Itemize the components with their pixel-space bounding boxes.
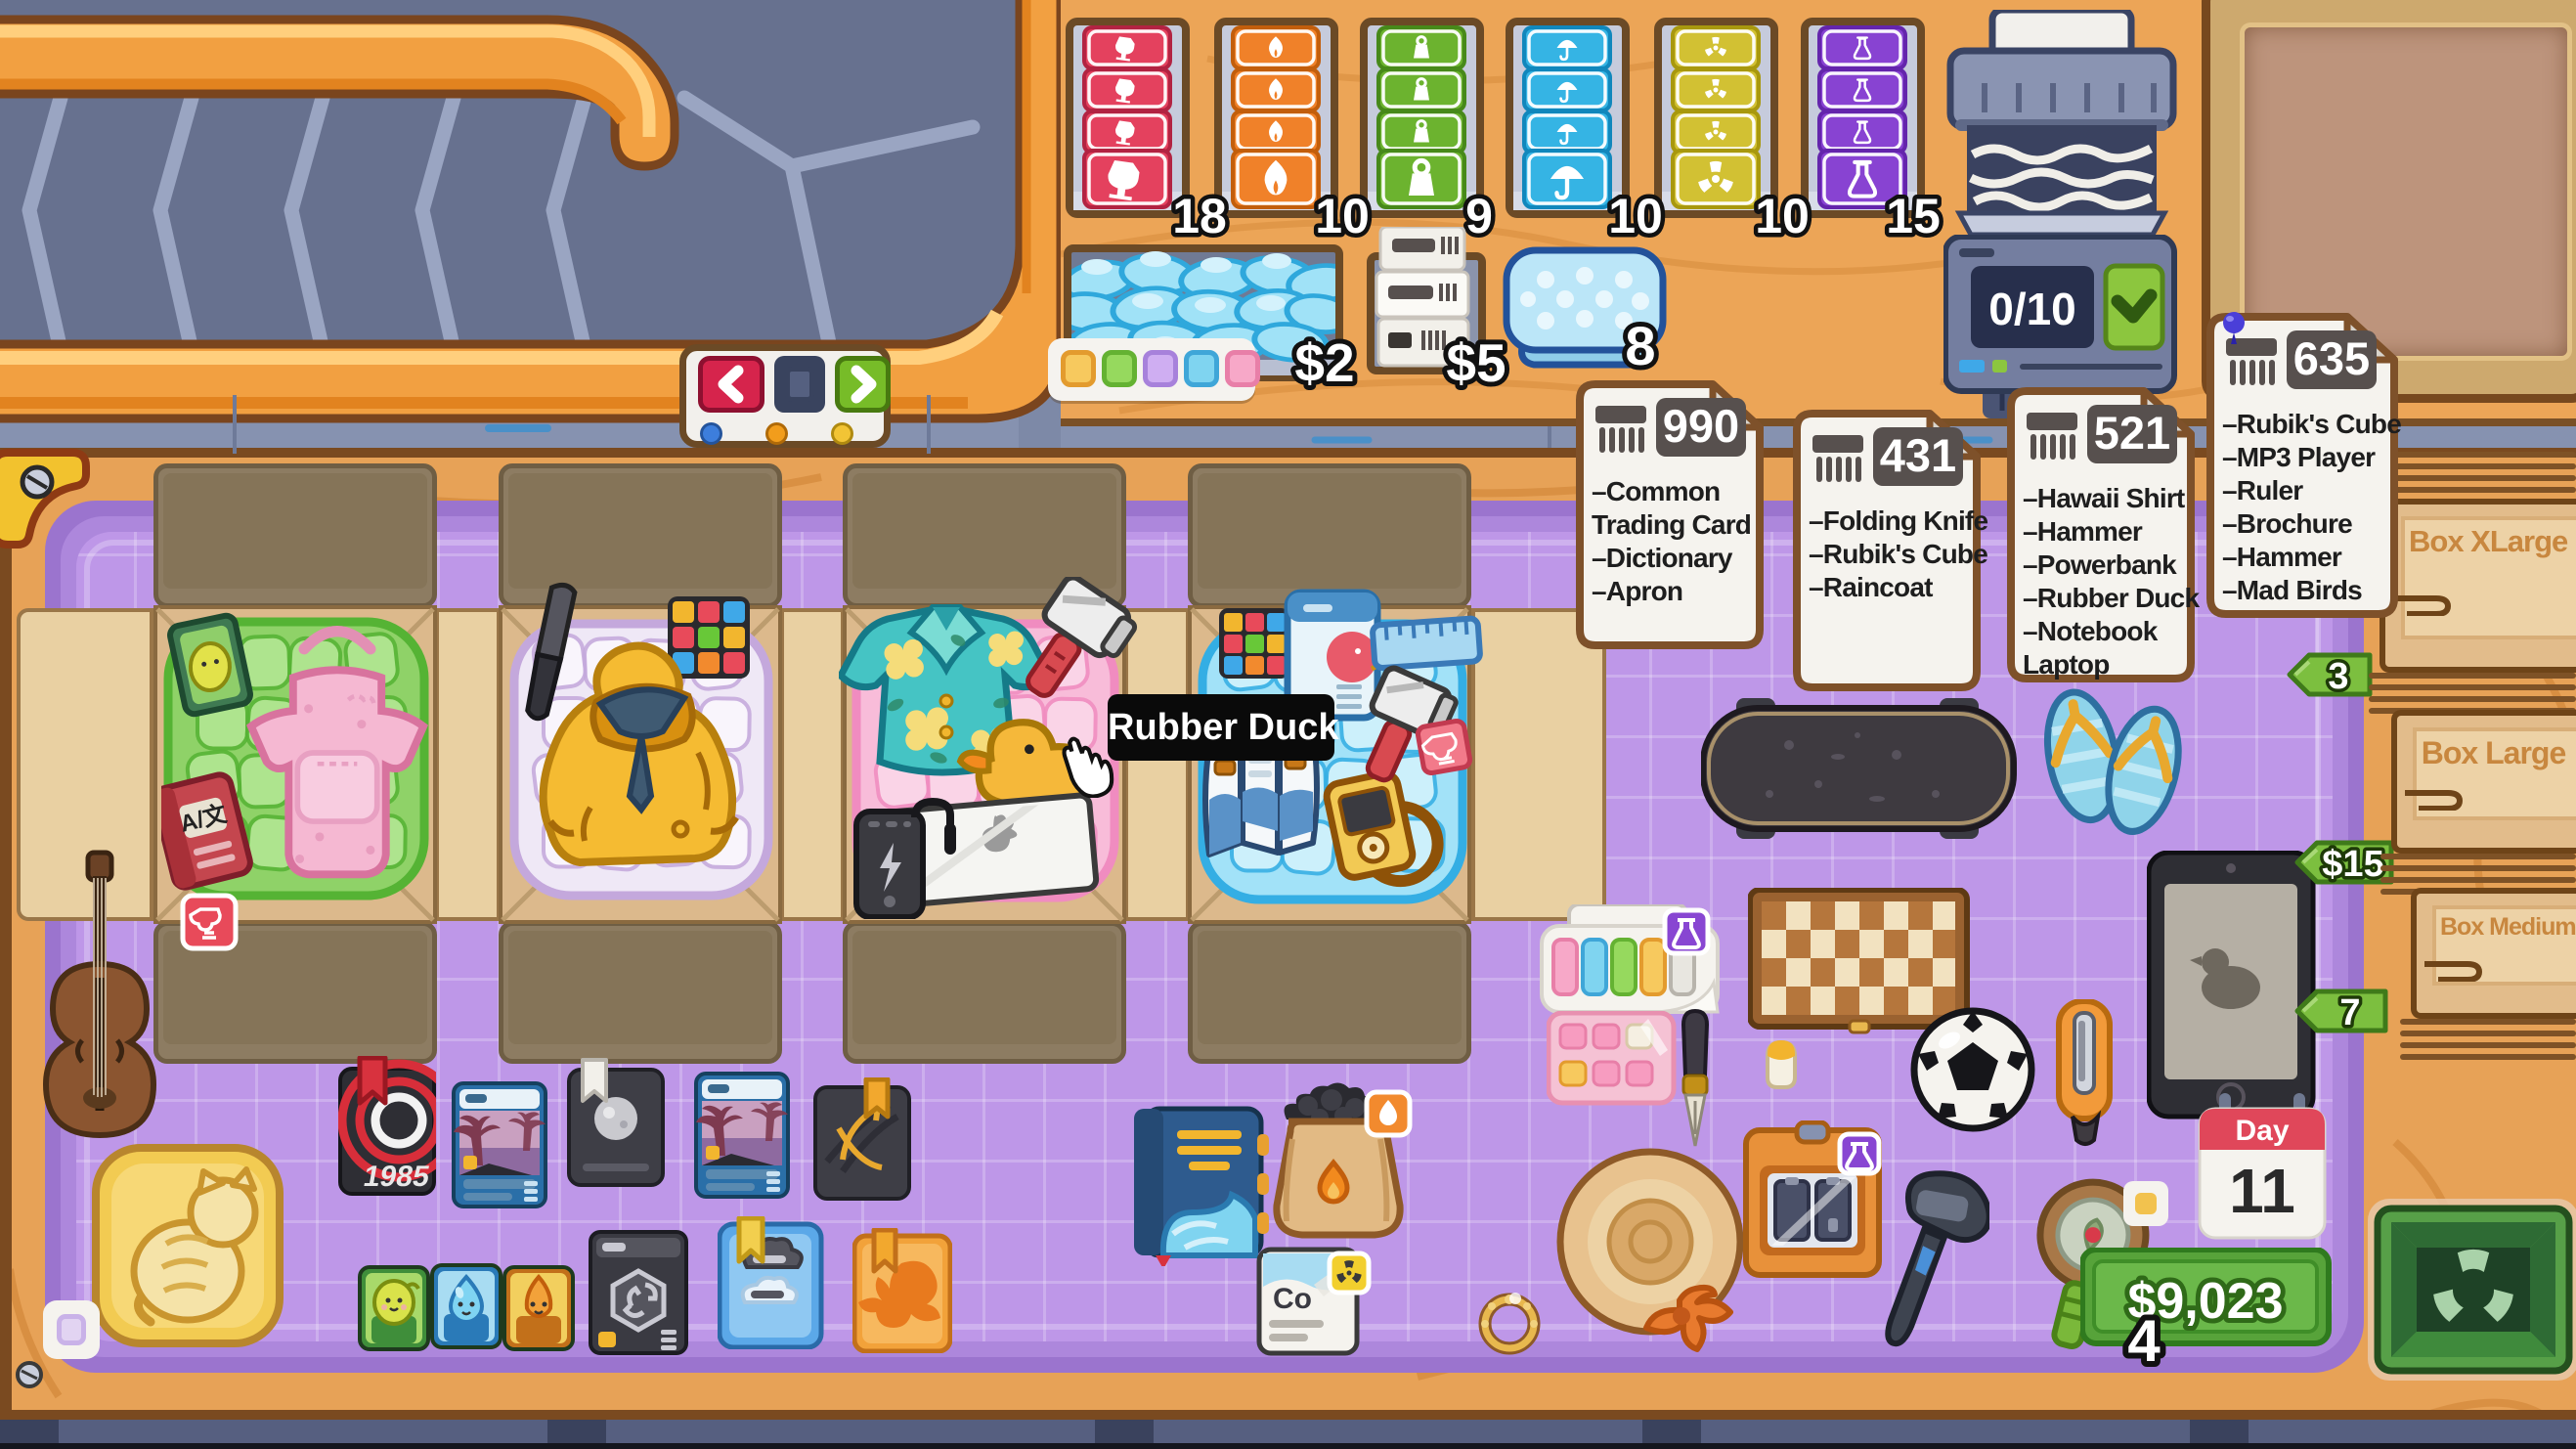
svg-text:–Rubik's Cube: –Rubik's Cube — [1809, 539, 1987, 569]
svg-text:–Apron: –Apron — [1592, 576, 1682, 606]
svg-text:Trading Card: Trading Card — [1592, 509, 1751, 540]
svg-text:431: 431 — [1880, 429, 1956, 481]
svg-text:–Hawaii Shirt: –Hawaii Shirt — [2023, 483, 2185, 513]
svg-text:Laptop: Laptop — [2023, 649, 2110, 680]
svg-text:$15: $15 — [2322, 844, 2383, 885]
svg-text:10: 10 — [1315, 189, 1370, 243]
svg-text:–Hammer: –Hammer — [2222, 542, 2342, 572]
svg-text:–Powerbank: –Powerbank — [2023, 549, 2177, 580]
svg-text:–Mad Birds: –Mad Birds — [2222, 575, 2362, 605]
svg-text:11: 11 — [2229, 1156, 2295, 1226]
svg-text:–Dictionary: –Dictionary — [1592, 543, 1733, 573]
svg-text:8: 8 — [1625, 315, 1655, 376]
svg-text:–Common: –Common — [1592, 476, 1720, 506]
svg-text:7: 7 — [2339, 992, 2360, 1033]
svg-text:–Raincoat: –Raincoat — [1809, 572, 1933, 602]
svg-text:–Ruler: –Ruler — [2222, 475, 2303, 505]
svg-text:10: 10 — [1608, 189, 1663, 243]
svg-text:$2: $2 — [1294, 332, 1354, 393]
svg-text:4: 4 — [2127, 1308, 2161, 1374]
svg-text:–Folding Knife: –Folding Knife — [1809, 505, 1987, 536]
svg-text:$5: $5 — [1446, 332, 1506, 393]
svg-text:Co: Co — [1273, 1283, 1312, 1315]
svg-text:635: 635 — [2293, 332, 2370, 384]
svg-text:1985: 1985 — [361, 1161, 431, 1193]
svg-text:Day: Day — [2235, 1115, 2289, 1147]
svg-text:–Rubik's Cube: –Rubik's Cube — [2222, 409, 2401, 439]
svg-text:–Brochure: –Brochure — [2222, 508, 2352, 539]
svg-text:–Hammer: –Hammer — [2023, 516, 2143, 547]
svg-text:15: 15 — [1886, 189, 1941, 243]
svg-text:18: 18 — [1172, 189, 1227, 243]
svg-text:3: 3 — [2328, 656, 2348, 697]
svg-text:10: 10 — [1755, 189, 1810, 243]
svg-text:521: 521 — [2094, 407, 2170, 459]
svg-text:990: 990 — [1663, 400, 1739, 452]
svg-text:0/10: 0/10 — [1988, 284, 2076, 334]
svg-text:–Notebook: –Notebook — [2023, 616, 2159, 646]
svg-text:–Rubber Duck: –Rubber Duck — [2023, 583, 2200, 613]
svg-text:–MP3 Player: –MP3 Player — [2222, 442, 2376, 472]
